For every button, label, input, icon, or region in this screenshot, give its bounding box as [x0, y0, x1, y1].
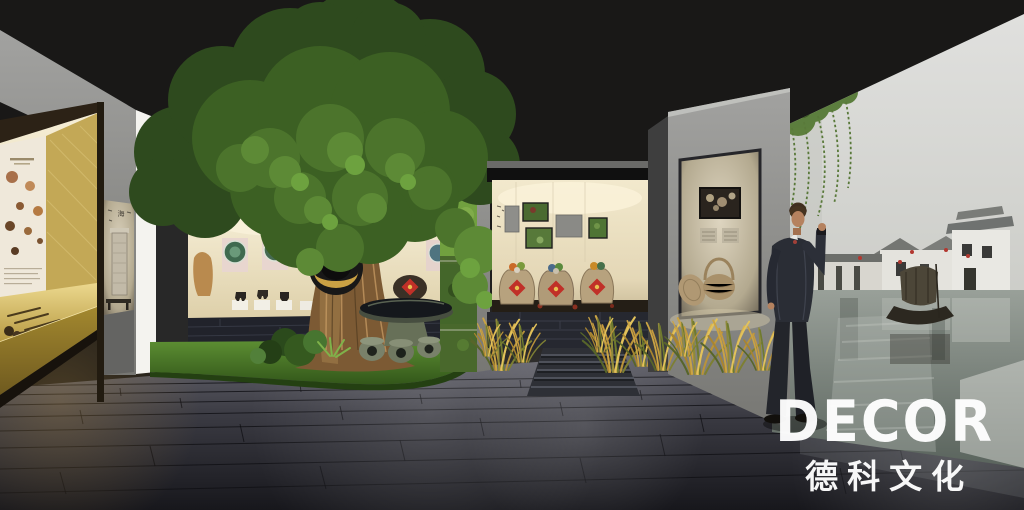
stele-niche: 海 — [104, 200, 134, 375]
calligraphy-text: 海 — [118, 209, 125, 218]
pottery-jar — [193, 252, 213, 296]
museum-exhibition-render: 海 — [0, 0, 1024, 510]
artifact-panel — [0, 136, 46, 306]
decor-logo-chinese: 德科文化 — [775, 450, 1003, 498]
storage-jars — [499, 262, 613, 305]
decor-logo-text: DECOR — [775, 396, 994, 448]
case-side-frame — [97, 102, 104, 402]
decor-watermark: DECOR 德科文化 — [775, 397, 994, 498]
exhibit-niche — [670, 150, 770, 331]
